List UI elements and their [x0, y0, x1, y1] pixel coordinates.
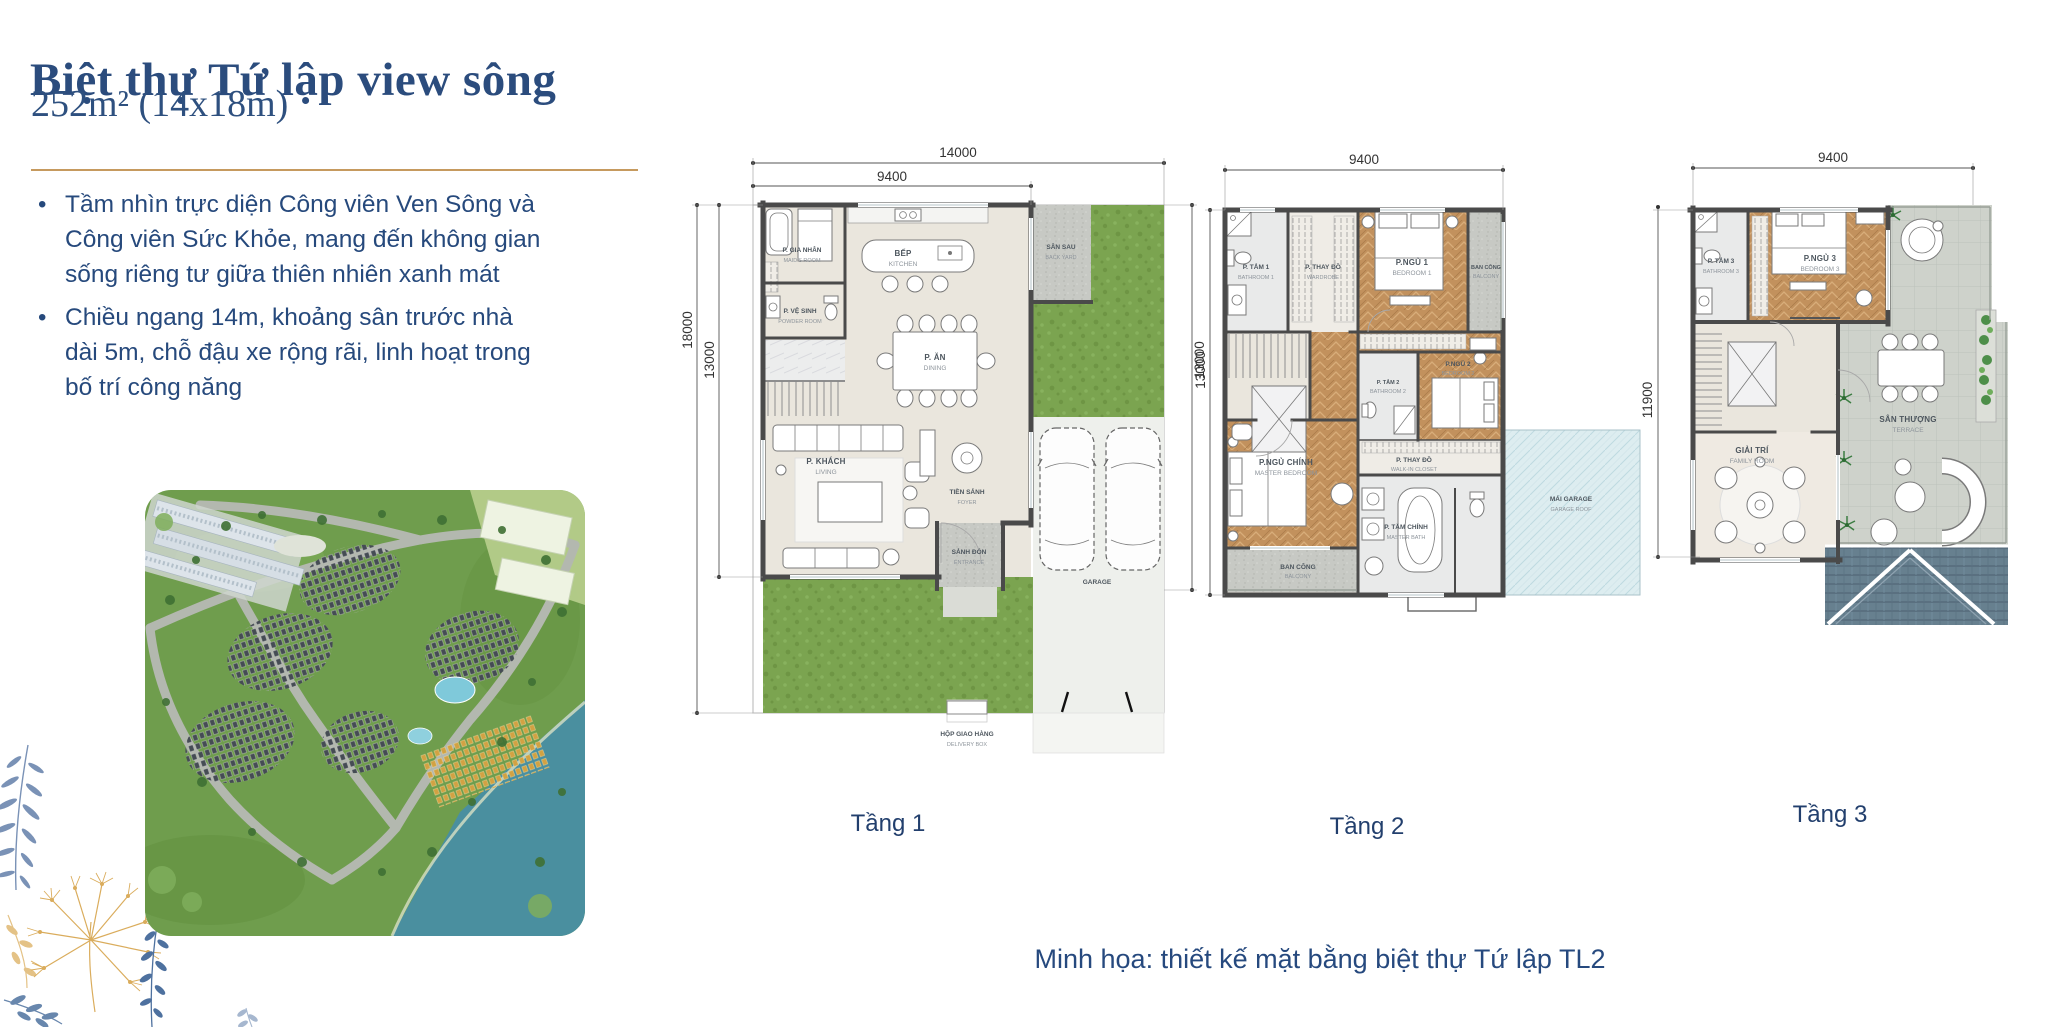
label-master-vi: P.NGỦ CHÍNH	[1259, 458, 1313, 467]
label-family-en: FAMILY ROOM	[1730, 458, 1775, 465]
label-living-vi: P. KHÁCH	[806, 457, 845, 466]
label-master-en: MASTER BEDROOM	[1255, 470, 1317, 477]
label-bath1-en: BATHROOM 1	[1238, 275, 1274, 281]
label-bath3-vi: P. TẮM 3	[1708, 256, 1735, 265]
plan-caption: Minh họa: thiết kế mặt bằng biệt thự Tứ …	[990, 944, 1650, 975]
floor-label-1: Tầng 1	[823, 810, 953, 838]
dim-depth-f3: 11900	[1640, 382, 1655, 419]
label-closet1-en: WARDROBE	[1307, 275, 1340, 281]
gold-dill-sprig	[5, 872, 161, 1012]
dim-total-width-f1: 14000	[939, 145, 977, 160]
label-backyard-vi: SÂN SAU	[1046, 242, 1076, 251]
floorplan-1: 14000 9400 18000 13000 13000 SÂN SAU BAC…	[680, 145, 1207, 753]
floorplan-2: 9400 13000 P. TẮM 1 BATHROOM 1 P. THAY Đ…	[1193, 152, 1640, 611]
label-delivery-vi: HỘP GIAO HÀNG	[940, 729, 993, 738]
label-delivery-en: DELIVERY BOX	[947, 742, 987, 748]
floor-label-3: Tầng 3	[1765, 801, 1895, 829]
floor-label-2: Tầng 2	[1302, 813, 1432, 841]
roof	[1825, 546, 2008, 625]
label-balcony1-en: BALCONY	[1473, 274, 1500, 280]
label-bed3-vi: P.NGỦ 3	[1804, 254, 1837, 263]
blue-sprig-faint	[237, 1008, 258, 1027]
label-walkin-en: WALK-IN CLOSET	[1391, 467, 1438, 473]
label-bed3-en: BEDROOM 3	[1800, 266, 1839, 273]
label-bath3-en: BATHROOM 3	[1703, 269, 1739, 275]
label-maid-vi: P. GIA NHÂN	[782, 245, 821, 254]
dim-house-width-f1: 9400	[877, 169, 907, 184]
label-backyard-en: BACK YARD	[1045, 255, 1076, 261]
label-entry-vi: SẢNH ĐÓN	[952, 547, 987, 556]
label-dining-vi: P. ĂN	[924, 353, 945, 362]
label-kitchen-en: KITCHEN	[889, 261, 918, 268]
bullet-item-2: Chiều ngang 14m, khoảng sân trước nhà dà…	[30, 301, 550, 405]
label-bed2-en: BEDROOM 2	[1441, 371, 1474, 377]
dim-width-f2: 9400	[1349, 152, 1379, 167]
label-entry-en: ENTRANCE	[954, 560, 985, 566]
dim-depth-f2: 13000	[1193, 351, 1208, 389]
label-masterbath-en: MASTER BATH	[1387, 535, 1426, 541]
dim-house-depth-f1: 13000	[702, 341, 717, 379]
delivery-box	[947, 701, 987, 714]
label-balcony1-vi: BAN CÔNG	[1471, 263, 1501, 271]
dim-total-depth-f1: 18000	[680, 311, 695, 349]
page-graphics: 14000 9400 18000 13000 13000 SÂN SAU BAC…	[0, 0, 2048, 1027]
blue-leaf-bottom	[4, 994, 62, 1027]
floorplan-3: 9400 11900 P. TẮM 3 BATHROOM 3 P.NGỦ 3 B…	[1640, 150, 2008, 625]
label-balcony2-vi: BAN CÔNG	[1280, 562, 1315, 571]
label-garageroof-en: GARAGE ROOF	[1551, 507, 1593, 513]
aerial-render	[115, 490, 585, 936]
label-bath1-vi: P. TẮM 1	[1243, 262, 1270, 271]
family-furniture	[1715, 457, 1805, 553]
label-maid-en: MAID'S ROOM	[783, 258, 821, 264]
label-terrace-vi: SÂN THƯỢNG	[1879, 415, 1936, 424]
label-balcony2-en: BALCONY	[1285, 574, 1312, 580]
gold-divider	[31, 169, 638, 171]
label-foyer-en: FOYER	[958, 500, 977, 506]
label-bath2-en: BATHROOM 2	[1370, 389, 1406, 395]
bullet-item-1: Tầm nhìn trực diện Công viên Ven Sông và…	[30, 188, 550, 292]
label-kitchen-vi: BẾP	[894, 248, 912, 258]
label-dining-en: DINING	[924, 365, 947, 372]
label-bed2-vi: P.NGỦ 2	[1445, 359, 1471, 368]
label-bed1-vi: P.NGỦ 1	[1396, 258, 1429, 267]
label-family-vi: GIẢI TRÍ	[1735, 446, 1769, 455]
label-powder-en: POWDER ROOM	[778, 319, 822, 325]
label-terrace-en: TERRACE	[1892, 427, 1924, 434]
label-powder-vi: P. VỆ SINH	[783, 306, 816, 315]
brochure-page: 14000 9400 18000 13000 13000 SÂN SAU BAC…	[0, 0, 2048, 1027]
label-garageroof-vi: MÁI GARAGE	[1550, 494, 1593, 503]
label-living-en: LIVING	[815, 469, 836, 476]
dim-width-f3: 9400	[1818, 150, 1848, 165]
label-garage: GARAGE	[1083, 579, 1112, 586]
label-masterbath-vi: P. TẮM CHÍNH	[1384, 522, 1428, 531]
label-bath2-vi: P. TẮM 2	[1377, 378, 1400, 386]
label-bed1-en: BEDROOM 1	[1392, 270, 1431, 277]
page-subtitle: 252m² (14x18m)	[31, 82, 531, 126]
feature-bullets: Tầm nhìn trực diện Công viên Ven Sông và…	[30, 188, 550, 415]
